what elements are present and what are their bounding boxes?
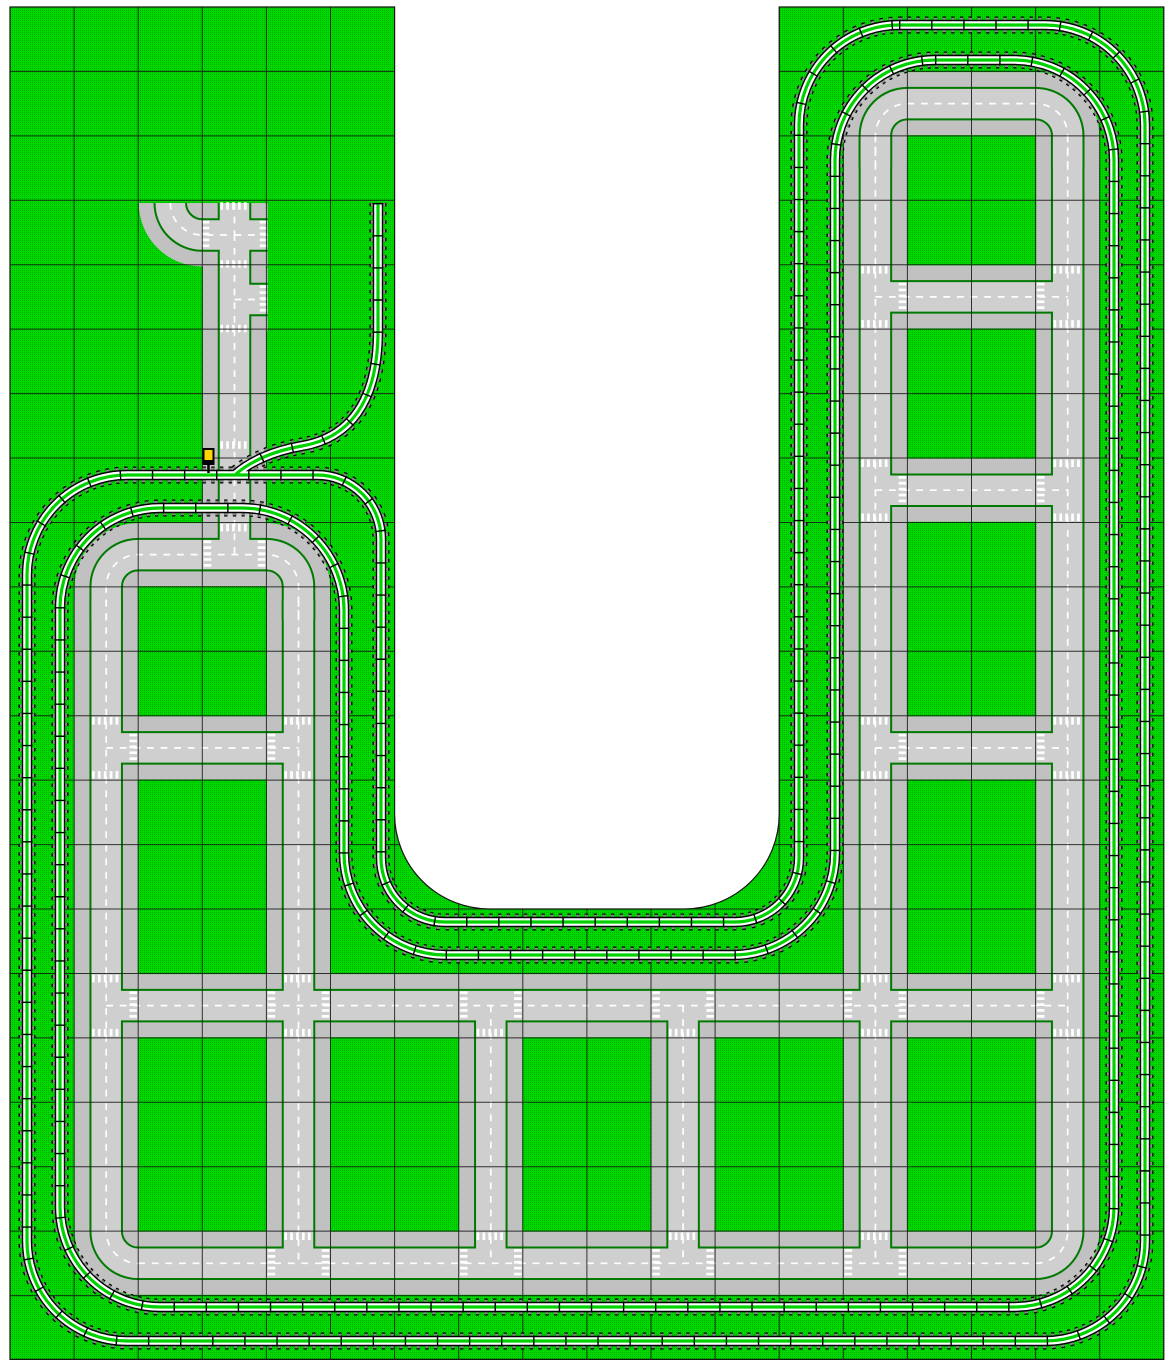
- signal-lamp-icon: [205, 450, 213, 460]
- editor-canvas[interactable]: [0, 0, 1176, 1368]
- layout-plan: [0, 0, 1176, 1368]
